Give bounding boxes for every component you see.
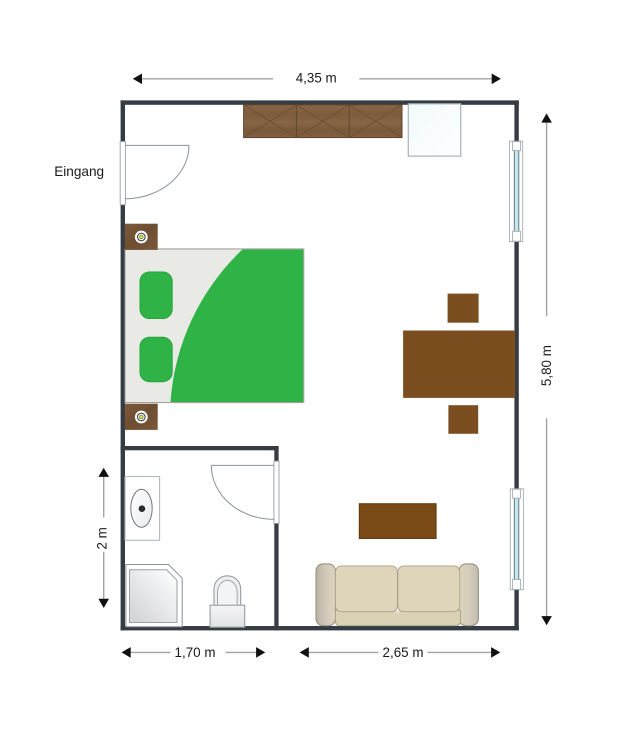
svg-text:4,35 m: 4,35 m [296, 71, 337, 86]
svg-text:2,65 m: 2,65 m [383, 645, 424, 660]
svg-text:5,80 m: 5,80 m [539, 345, 554, 386]
svg-text:1,70 m: 1,70 m [175, 645, 216, 660]
svg-text:Eingang: Eingang [54, 164, 104, 179]
svg-text:2 m: 2 m [95, 527, 110, 549]
